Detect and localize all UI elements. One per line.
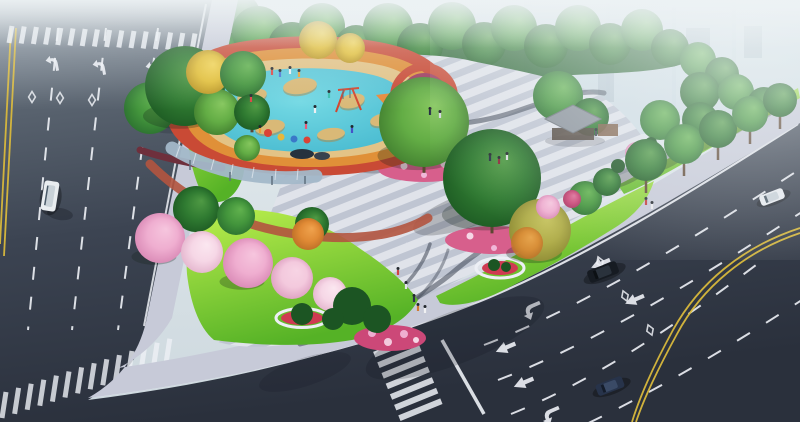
park-rendering-stage [0, 0, 800, 422]
flower-cluster [488, 259, 500, 271]
pedestrian [351, 125, 354, 133]
play-equipment-base [290, 149, 314, 159]
pedestrian [259, 125, 262, 133]
play-equipment-dome [278, 134, 285, 141]
pedestrian [397, 267, 400, 275]
pedestrian-head [259, 125, 262, 128]
tree-canopy [223, 238, 273, 288]
tree-canopy [234, 135, 260, 161]
tree-canopy [271, 257, 313, 299]
pedestrian [413, 294, 416, 302]
flower-ring-bed [482, 261, 518, 275]
flower-cluster [384, 338, 392, 346]
flower-cluster [413, 337, 419, 343]
pedestrian [424, 305, 427, 313]
tree-canopy [322, 308, 344, 330]
park-aerial-rendering [0, 0, 800, 422]
tree-canopy [135, 213, 185, 263]
play-equipment-dome [291, 136, 298, 143]
fog-right [430, 0, 800, 260]
flower-cluster [421, 172, 427, 178]
tree-canopy [217, 197, 255, 235]
pedestrian [417, 303, 420, 311]
pedestrian-head [424, 305, 427, 308]
pedestrian-head [351, 125, 354, 128]
play-equipment-base [314, 152, 330, 160]
tree-canopy [291, 303, 313, 325]
flower-cluster [501, 262, 511, 272]
pedestrian-head [413, 294, 416, 297]
pedestrian-head [305, 121, 308, 124]
play-equipment-dome [304, 137, 311, 144]
tree-canopy [181, 231, 223, 273]
pedestrian-head [397, 267, 400, 270]
pedestrian [305, 121, 308, 129]
tree-canopy [292, 218, 324, 250]
pedestrian [405, 281, 408, 289]
flower-cluster [400, 330, 408, 338]
pedestrian-head [405, 281, 408, 284]
play-equipment-dome [264, 129, 272, 137]
pedestrian-head [417, 303, 420, 306]
tree-canopy [363, 305, 391, 333]
